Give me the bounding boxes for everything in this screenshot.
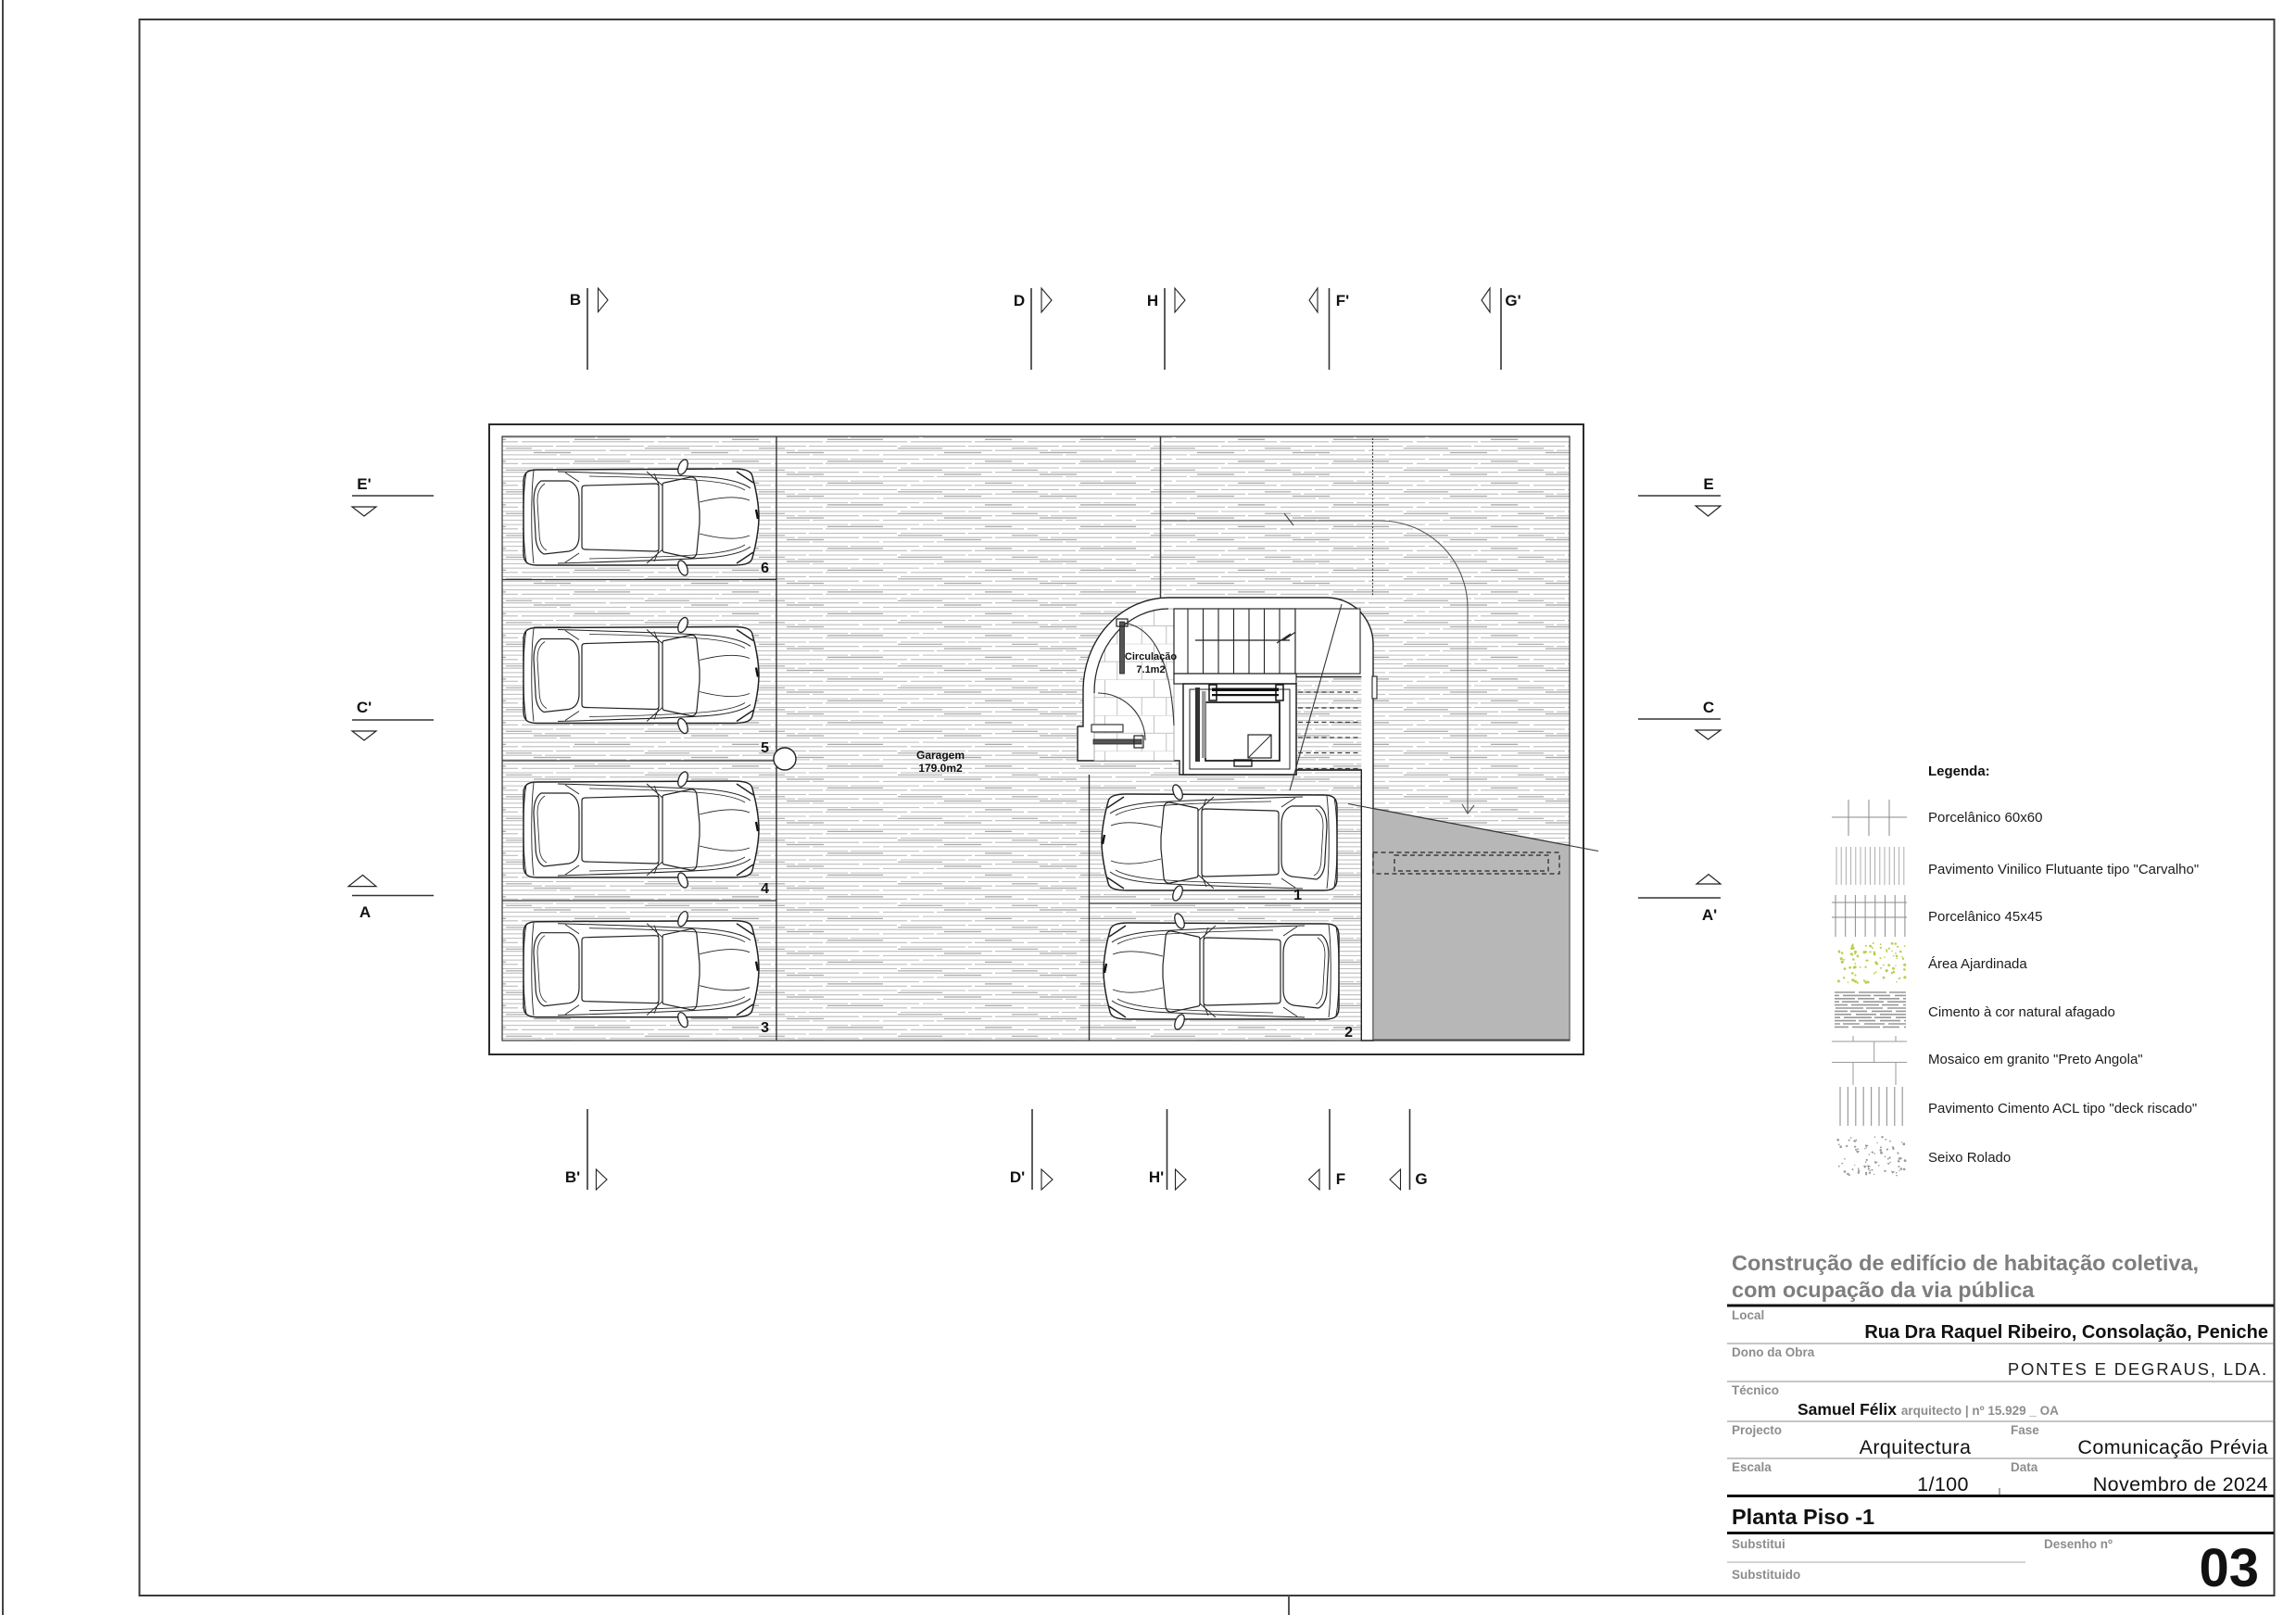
svg-text:F': F' bbox=[1336, 292, 1349, 309]
svg-text:Desenho nº: Desenho nº bbox=[2044, 1537, 2113, 1551]
svg-text:Local: Local bbox=[1732, 1308, 1764, 1322]
svg-text:D': D' bbox=[1010, 1168, 1025, 1186]
svg-text:Projecto: Projecto bbox=[1732, 1423, 1782, 1437]
svg-text:1/100: 1/100 bbox=[1917, 1473, 1969, 1495]
svg-text:Circulação: Circulação bbox=[1125, 651, 1178, 662]
svg-text:B: B bbox=[570, 291, 581, 309]
svg-text:Pavimento Vinilico Flutuante t: Pavimento Vinilico Flutuante tipo "Carva… bbox=[1928, 862, 2199, 877]
svg-text:G: G bbox=[1415, 1170, 1427, 1188]
svg-text:Porcelânico 45x45: Porcelânico 45x45 bbox=[1928, 909, 2042, 925]
svg-text:Técnico: Técnico bbox=[1732, 1383, 1779, 1397]
svg-text:3: 3 bbox=[761, 1020, 769, 1036]
svg-text:Mosaico em granito "Preto Ango: Mosaico em granito "Preto Angola" bbox=[1928, 1052, 2143, 1067]
svg-text:E': E' bbox=[357, 475, 371, 493]
svg-text:Cimento à cor natural afagado: Cimento à cor natural afagado bbox=[1928, 1004, 2115, 1020]
svg-text:7.1m2: 7.1m2 bbox=[1136, 664, 1165, 675]
svg-text:F: F bbox=[1336, 1170, 1345, 1188]
svg-text:Fase: Fase bbox=[2011, 1423, 2039, 1437]
svg-text:Novembro de 2024: Novembro de 2024 bbox=[2093, 1473, 2268, 1495]
svg-text:5: 5 bbox=[761, 740, 769, 756]
svg-text:G': G' bbox=[1505, 292, 1520, 309]
svg-text:Garagem: Garagem bbox=[916, 749, 965, 762]
svg-text:Legenda:: Legenda: bbox=[1928, 763, 1990, 779]
svg-text:Pavimento Cimento ACL tipo "de: Pavimento Cimento ACL tipo "deck riscado… bbox=[1928, 1101, 2197, 1117]
svg-text:D: D bbox=[1014, 292, 1025, 309]
svg-text:Data: Data bbox=[2011, 1460, 2038, 1474]
svg-text:A': A' bbox=[1702, 906, 1717, 924]
svg-text:179.0m2: 179.0m2 bbox=[918, 762, 963, 775]
svg-text:03: 03 bbox=[2199, 1538, 2259, 1598]
svg-text:C: C bbox=[1703, 699, 1714, 716]
svg-text:PONTES E DEGRAUS, LDA.: PONTES E DEGRAUS, LDA. bbox=[2008, 1359, 2268, 1379]
svg-text:Dono da Obra: Dono da Obra bbox=[1732, 1345, 1815, 1359]
svg-text:Escala: Escala bbox=[1732, 1460, 1772, 1474]
svg-text:Construção de edifício de habi: Construção de edifício de habitação cole… bbox=[1732, 1251, 2199, 1275]
svg-text:A: A bbox=[360, 903, 371, 921]
svg-text:6: 6 bbox=[761, 561, 769, 576]
svg-text:C': C' bbox=[357, 699, 372, 716]
svg-text:H': H' bbox=[1149, 1168, 1164, 1186]
svg-text:Comunicação Prévia: Comunicação Prévia bbox=[2077, 1436, 2268, 1458]
svg-text:Substitui: Substitui bbox=[1732, 1537, 1785, 1551]
svg-text:Substituido: Substituido bbox=[1732, 1568, 1800, 1582]
svg-text:com ocupação da via pública: com ocupação da via pública bbox=[1732, 1278, 2035, 1302]
svg-text:Planta Piso -1: Planta Piso -1 bbox=[1732, 1505, 1874, 1529]
svg-text:4: 4 bbox=[761, 881, 769, 897]
svg-text:Rua Dra Raquel Ribeiro, Consol: Rua Dra Raquel Ribeiro, Consolação, Peni… bbox=[1864, 1322, 2268, 1343]
svg-text:Área Ajardinada: Área Ajardinada bbox=[1928, 956, 2027, 972]
svg-text:Arquitectura: Arquitectura bbox=[1860, 1436, 1972, 1458]
svg-text:Porcelânico 60x60: Porcelânico 60x60 bbox=[1928, 810, 2042, 826]
svg-text:Seixo Rolado: Seixo Rolado bbox=[1928, 1150, 2011, 1166]
svg-text:B': B' bbox=[565, 1168, 580, 1186]
svg-text:H: H bbox=[1147, 292, 1158, 309]
svg-text:1: 1 bbox=[1293, 888, 1302, 903]
svg-text:2: 2 bbox=[1344, 1025, 1353, 1041]
svg-text:E: E bbox=[1703, 475, 1713, 493]
